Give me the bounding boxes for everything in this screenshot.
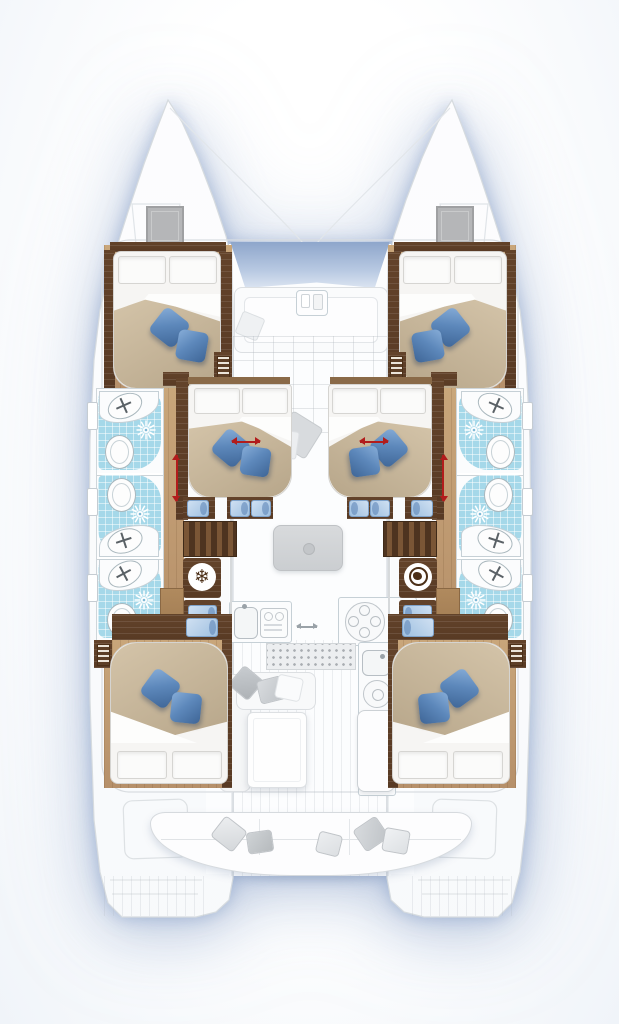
bed-convert-arrow-vertical: [439, 450, 448, 506]
forward-cabin-locker: [389, 352, 406, 380]
starboard-hull-interior: ❄: [1, 0, 619, 1024]
bow-hatch: [436, 206, 474, 246]
arrow-head: [355, 437, 365, 445]
aft-cabin-bed: [392, 642, 510, 784]
companionway-stairs: [383, 521, 437, 557]
white-pillow: [454, 256, 502, 284]
white-pillow: [453, 751, 503, 779]
bathroom-1: [457, 389, 523, 475]
shower-head-icon: [465, 589, 487, 611]
bathroom-2: [457, 473, 523, 559]
mid-cabin-headboard: [330, 377, 432, 384]
hatch-inner: [441, 211, 469, 241]
aft-drawer-pad: [402, 618, 434, 637]
washer-laundry: [413, 572, 422, 580]
aft-cabin-wall-top: [388, 614, 508, 640]
louver-vent-icon: [510, 644, 523, 666]
aft-cabin-locker: [508, 640, 526, 668]
white-pillow: [380, 388, 426, 414]
appliance-cabinet: ❄: [399, 558, 437, 598]
hull-window: [522, 574, 533, 602]
bed-convert-arrow-horizontal: [355, 437, 393, 446]
arrow-head: [440, 450, 448, 460]
louver-vent-icon: [390, 356, 403, 378]
arrow-shaft: [443, 455, 445, 501]
step-pad: [349, 500, 369, 517]
arrow-head: [383, 437, 393, 445]
toilet-icon: [486, 435, 515, 469]
white-pillow: [403, 256, 451, 284]
blue-pillow: [348, 445, 381, 478]
toilet-bowl: [489, 483, 508, 507]
catamaran-floor-plan: ❄: [0, 0, 619, 1024]
bathroom-block: [456, 388, 524, 642]
shower-head-icon: [469, 503, 491, 525]
blue-pillow: [418, 692, 451, 725]
forward-cabin-bed: [399, 251, 507, 389]
hull-window: [522, 488, 533, 516]
step-pad: [411, 500, 433, 517]
hull-window: [522, 402, 533, 430]
washer-icon: [404, 563, 432, 591]
white-pillow: [332, 388, 378, 414]
white-pillow: [398, 751, 448, 779]
mid-cabin-bed: [328, 384, 432, 498]
step-pad: [370, 500, 390, 517]
shower-head-icon: [463, 419, 485, 441]
step-box: [347, 497, 393, 519]
toilet-bowl: [491, 440, 510, 464]
blue-pillow: [411, 329, 446, 364]
step-box: [405, 497, 437, 519]
arrow-head: [440, 496, 448, 506]
